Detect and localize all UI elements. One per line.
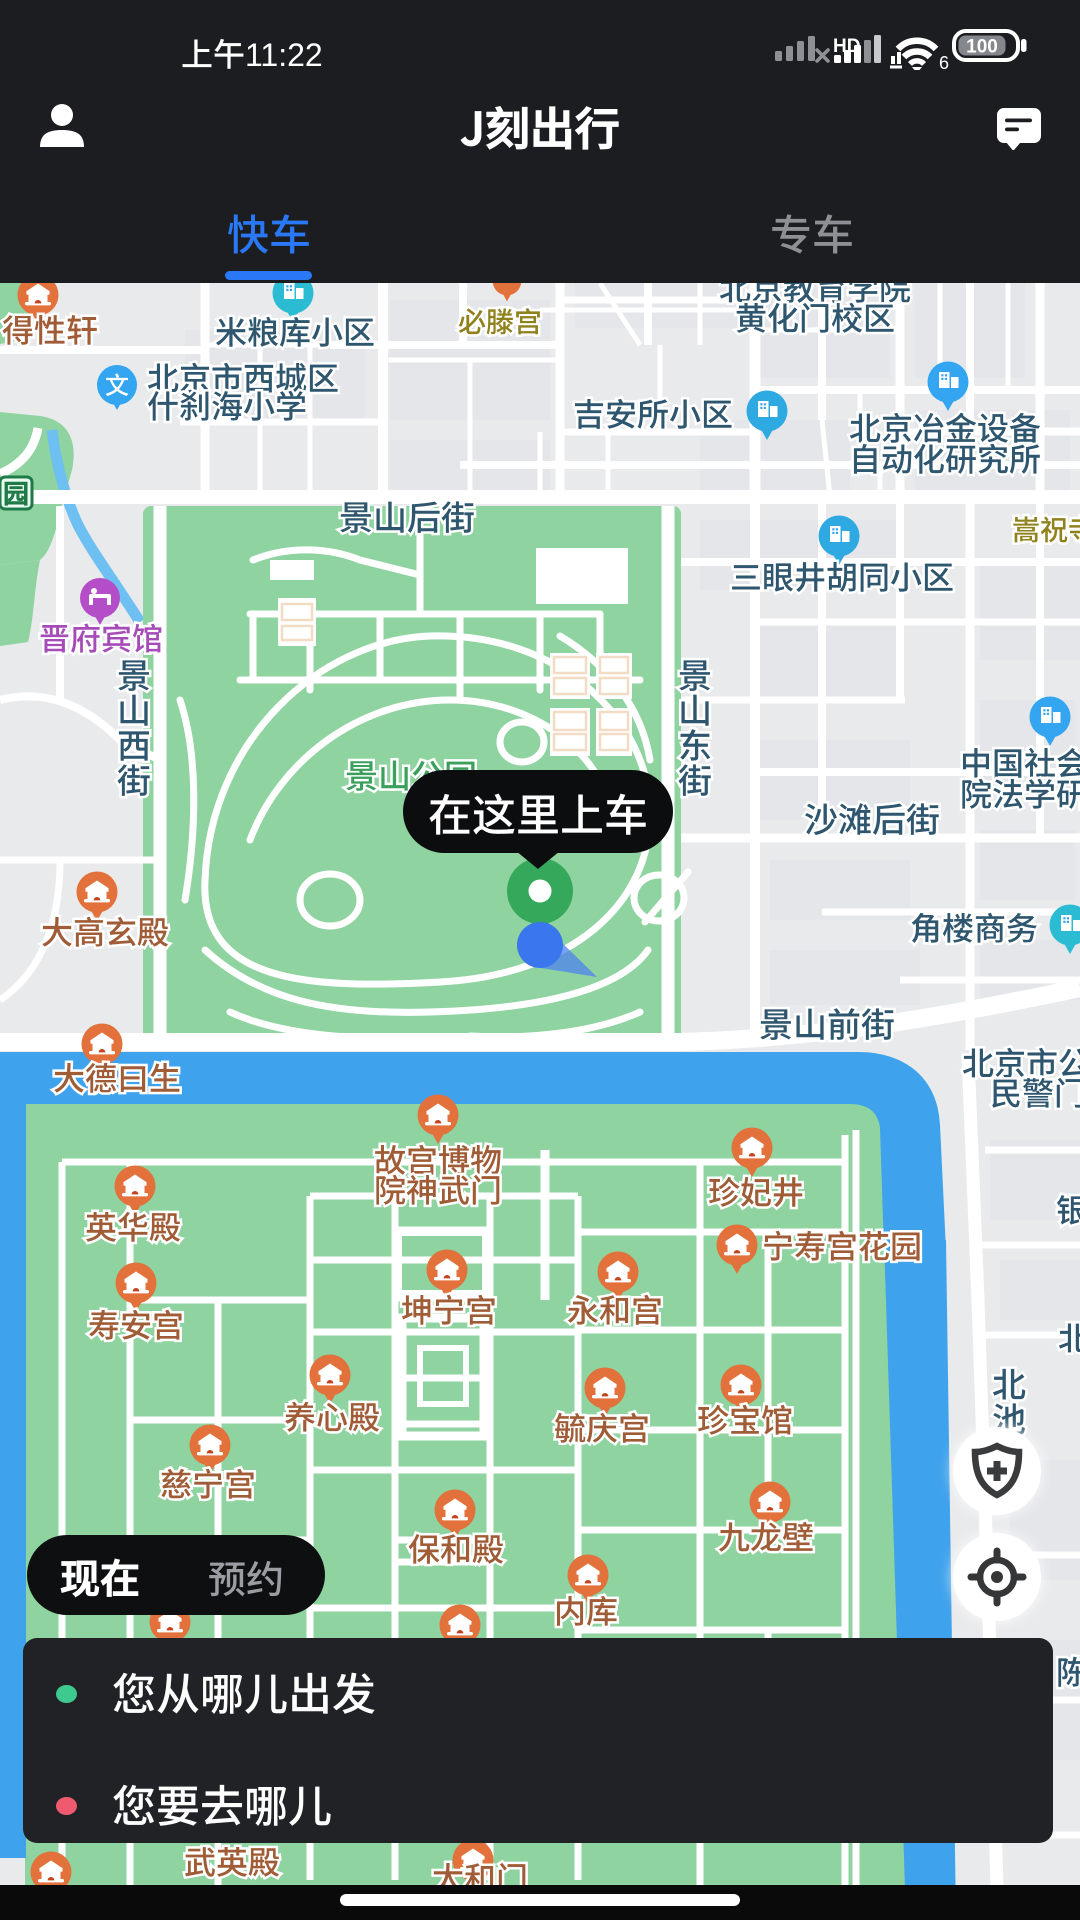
svg-text:院神武门: 院神武门 (374, 1166, 502, 1212)
svg-text:坤宁宫: 坤宁宫 (401, 1286, 497, 1332)
svg-text:寿安宫: 寿安宫 (88, 1301, 184, 1347)
svg-text:英华殿: 英华殿 (85, 1203, 181, 1249)
svg-text:景山前街: 景山前街 (759, 998, 895, 1047)
svg-text:必滕宫: 必滕宫 (458, 301, 542, 341)
svg-text:街: 街 (678, 754, 712, 803)
svg-text:九龙壁: 九龙壁 (718, 1513, 814, 1559)
svg-text:得性轩: 得性轩 (2, 306, 98, 352)
svg-text:慈宁宫: 慈宁宫 (160, 1460, 256, 1506)
svg-text:景山后街: 景山后街 (339, 491, 475, 540)
svg-text:武英殿: 武英殿 (184, 1838, 280, 1884)
svg-text:吉安所小区: 吉安所小区 (573, 390, 733, 436)
svg-text:街: 街 (117, 754, 151, 803)
svg-text:大高玄殿: 大高玄殿 (41, 908, 169, 954)
svg-text:嵩祝寺: 嵩祝寺 (1012, 509, 1080, 549)
svg-text:养心殿: 养心殿 (284, 1393, 380, 1439)
svg-text:北: 北 (1058, 1314, 1080, 1360)
svg-text:黄化门校区: 黄化门校区 (735, 294, 895, 340)
svg-text:民警门: 民警门 (990, 1069, 1080, 1115)
svg-text:毓庆宫: 毓庆宫 (554, 1404, 650, 1450)
svg-text:100: 100 (966, 37, 998, 58)
svg-text:内库: 内库 (554, 1587, 618, 1633)
svg-text:永和宫: 永和宫 (567, 1286, 663, 1332)
svg-text:银: 银 (1056, 1186, 1080, 1232)
svg-text:6: 6 (939, 53, 949, 70)
svg-text:保和殿: 保和殿 (408, 1525, 504, 1571)
svg-text:自动化研究所: 自动化研究所 (849, 435, 1041, 481)
svg-text:沙滩后街: 沙滩后街 (804, 793, 940, 842)
svg-text:珍宝馆: 珍宝馆 (697, 1396, 793, 1442)
svg-text:大德曰生: 大德曰生 (53, 1054, 181, 1100)
svg-text:角楼商务: 角楼商务 (910, 904, 1038, 950)
svg-text:宁寿宫花园: 宁寿宫花园 (762, 1222, 922, 1268)
svg-text:什刹海小学: 什刹海小学 (147, 382, 307, 428)
svg-text:珍妃井: 珍妃井 (708, 1168, 804, 1214)
svg-text:园: 园 (3, 474, 29, 511)
svg-text:文: 文 (105, 366, 129, 401)
svg-text:三眼井胡同小区: 三眼井胡同小区 (730, 553, 954, 599)
svg-text:陈: 陈 (1056, 1648, 1080, 1694)
svg-text:米粮库小区: 米粮库小区 (215, 308, 375, 354)
svg-text:院法学研: 院法学研 (960, 770, 1080, 816)
